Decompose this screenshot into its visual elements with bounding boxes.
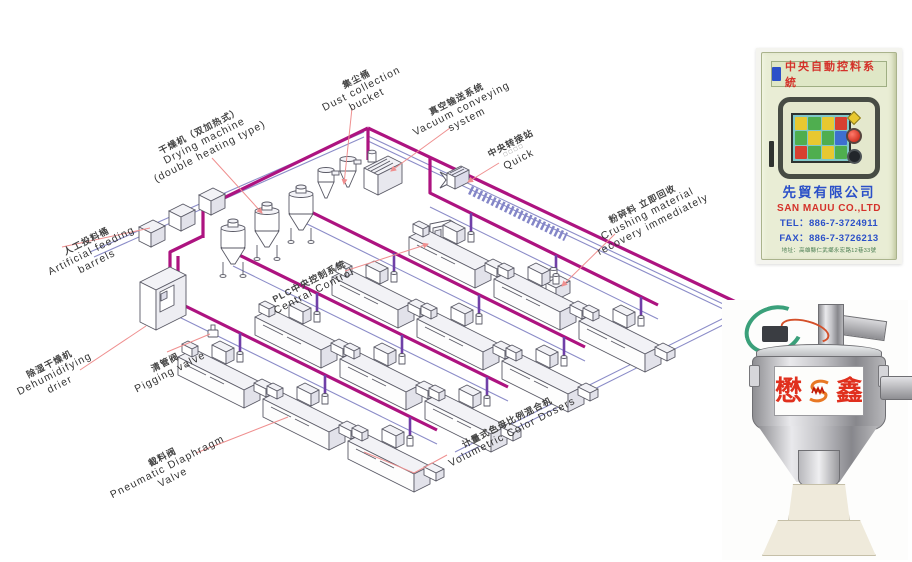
control-cabinet-photo: 中央自動控料系統 先貿有限公司 SAN MAUU CO.,LTD TEL：88 xyxy=(756,48,902,264)
molding-machine xyxy=(417,303,513,370)
cabinet-header-text: 中央自動控料系統 xyxy=(785,58,886,90)
molding-machine xyxy=(340,343,436,410)
vacuum-pump-station xyxy=(364,150,402,195)
screen-button xyxy=(808,131,820,144)
dust-collector xyxy=(318,168,339,199)
molding-machine xyxy=(502,345,598,412)
screen-button xyxy=(808,146,820,159)
molding-machine xyxy=(178,341,274,408)
hopper-dryer xyxy=(220,219,246,277)
hopper-dryer xyxy=(288,185,314,243)
feeding-barrel xyxy=(139,220,165,247)
side-pipe xyxy=(880,376,912,400)
base-neck xyxy=(788,484,850,522)
touch-screen[interactable] xyxy=(791,113,851,163)
base-foot xyxy=(762,520,876,556)
cabinet-body: 中央自動控料系統 先貿有限公司 SAN MAUU CO.,LTD TEL：88 xyxy=(761,52,897,260)
feeding-barrel xyxy=(169,204,195,231)
screen-button xyxy=(795,146,807,159)
brand-logo-icon xyxy=(806,378,832,404)
hopper-loader-photo: 懋 鑫 xyxy=(722,300,908,560)
fax-text: FAX：886-7-3726213 xyxy=(770,230,888,244)
brand-char-left: 懋 xyxy=(775,378,802,405)
sensor-unit xyxy=(762,326,788,342)
yellow-indicator-icon xyxy=(847,110,861,124)
feeding-barrel xyxy=(199,188,225,215)
molding-machine xyxy=(579,305,675,372)
screen-button xyxy=(795,117,807,130)
screen-button xyxy=(808,117,820,130)
screen-button xyxy=(822,146,834,159)
molding-machine xyxy=(255,301,351,368)
dehumidifying-drier xyxy=(140,267,186,330)
company-name-cn: 先貿有限公司 xyxy=(770,181,888,201)
blue-return-lines xyxy=(90,132,741,457)
red-indicator-icon xyxy=(846,128,862,144)
page: 干燥机（双加热式） Drying machine (double heating… xyxy=(0,0,912,562)
power-button[interactable] xyxy=(847,149,862,164)
emblem-icon xyxy=(772,67,781,81)
cabinet-text-block: 先貿有限公司 SAN MAUU CO.,LTD TEL：886-7-372491… xyxy=(770,181,888,254)
inlet-pipe xyxy=(839,315,887,341)
dust-collector xyxy=(340,157,361,188)
molding-machine xyxy=(263,383,359,450)
molding-machine xyxy=(348,425,444,492)
tel-text: TEL：886-7-3724911 xyxy=(770,215,888,229)
hopper-dryer xyxy=(254,202,280,260)
address-text: 地址：高雄縣仁武鄉永宏路12巷33號 xyxy=(770,246,888,254)
central-transfer-station xyxy=(447,166,469,189)
company-name-en: SAN MAUU CO.,LTD xyxy=(770,203,888,214)
molding-machine xyxy=(425,385,521,452)
molding-machine xyxy=(409,221,505,288)
door-handle[interactable] xyxy=(769,141,774,167)
screen-button xyxy=(822,117,834,130)
cabinet-header: 中央自動控料系統 xyxy=(771,61,887,87)
brand-char-right: 鑫 xyxy=(836,378,863,405)
brand-plate: 懋 鑫 xyxy=(774,366,864,416)
indicator-panel xyxy=(843,110,865,166)
cabinet-door-frame xyxy=(778,97,880,179)
pigging-valve xyxy=(208,325,218,337)
clamp-latch xyxy=(749,365,760,387)
screen-button xyxy=(822,131,834,144)
discharge-chute xyxy=(798,450,840,486)
screen-button xyxy=(795,131,807,144)
